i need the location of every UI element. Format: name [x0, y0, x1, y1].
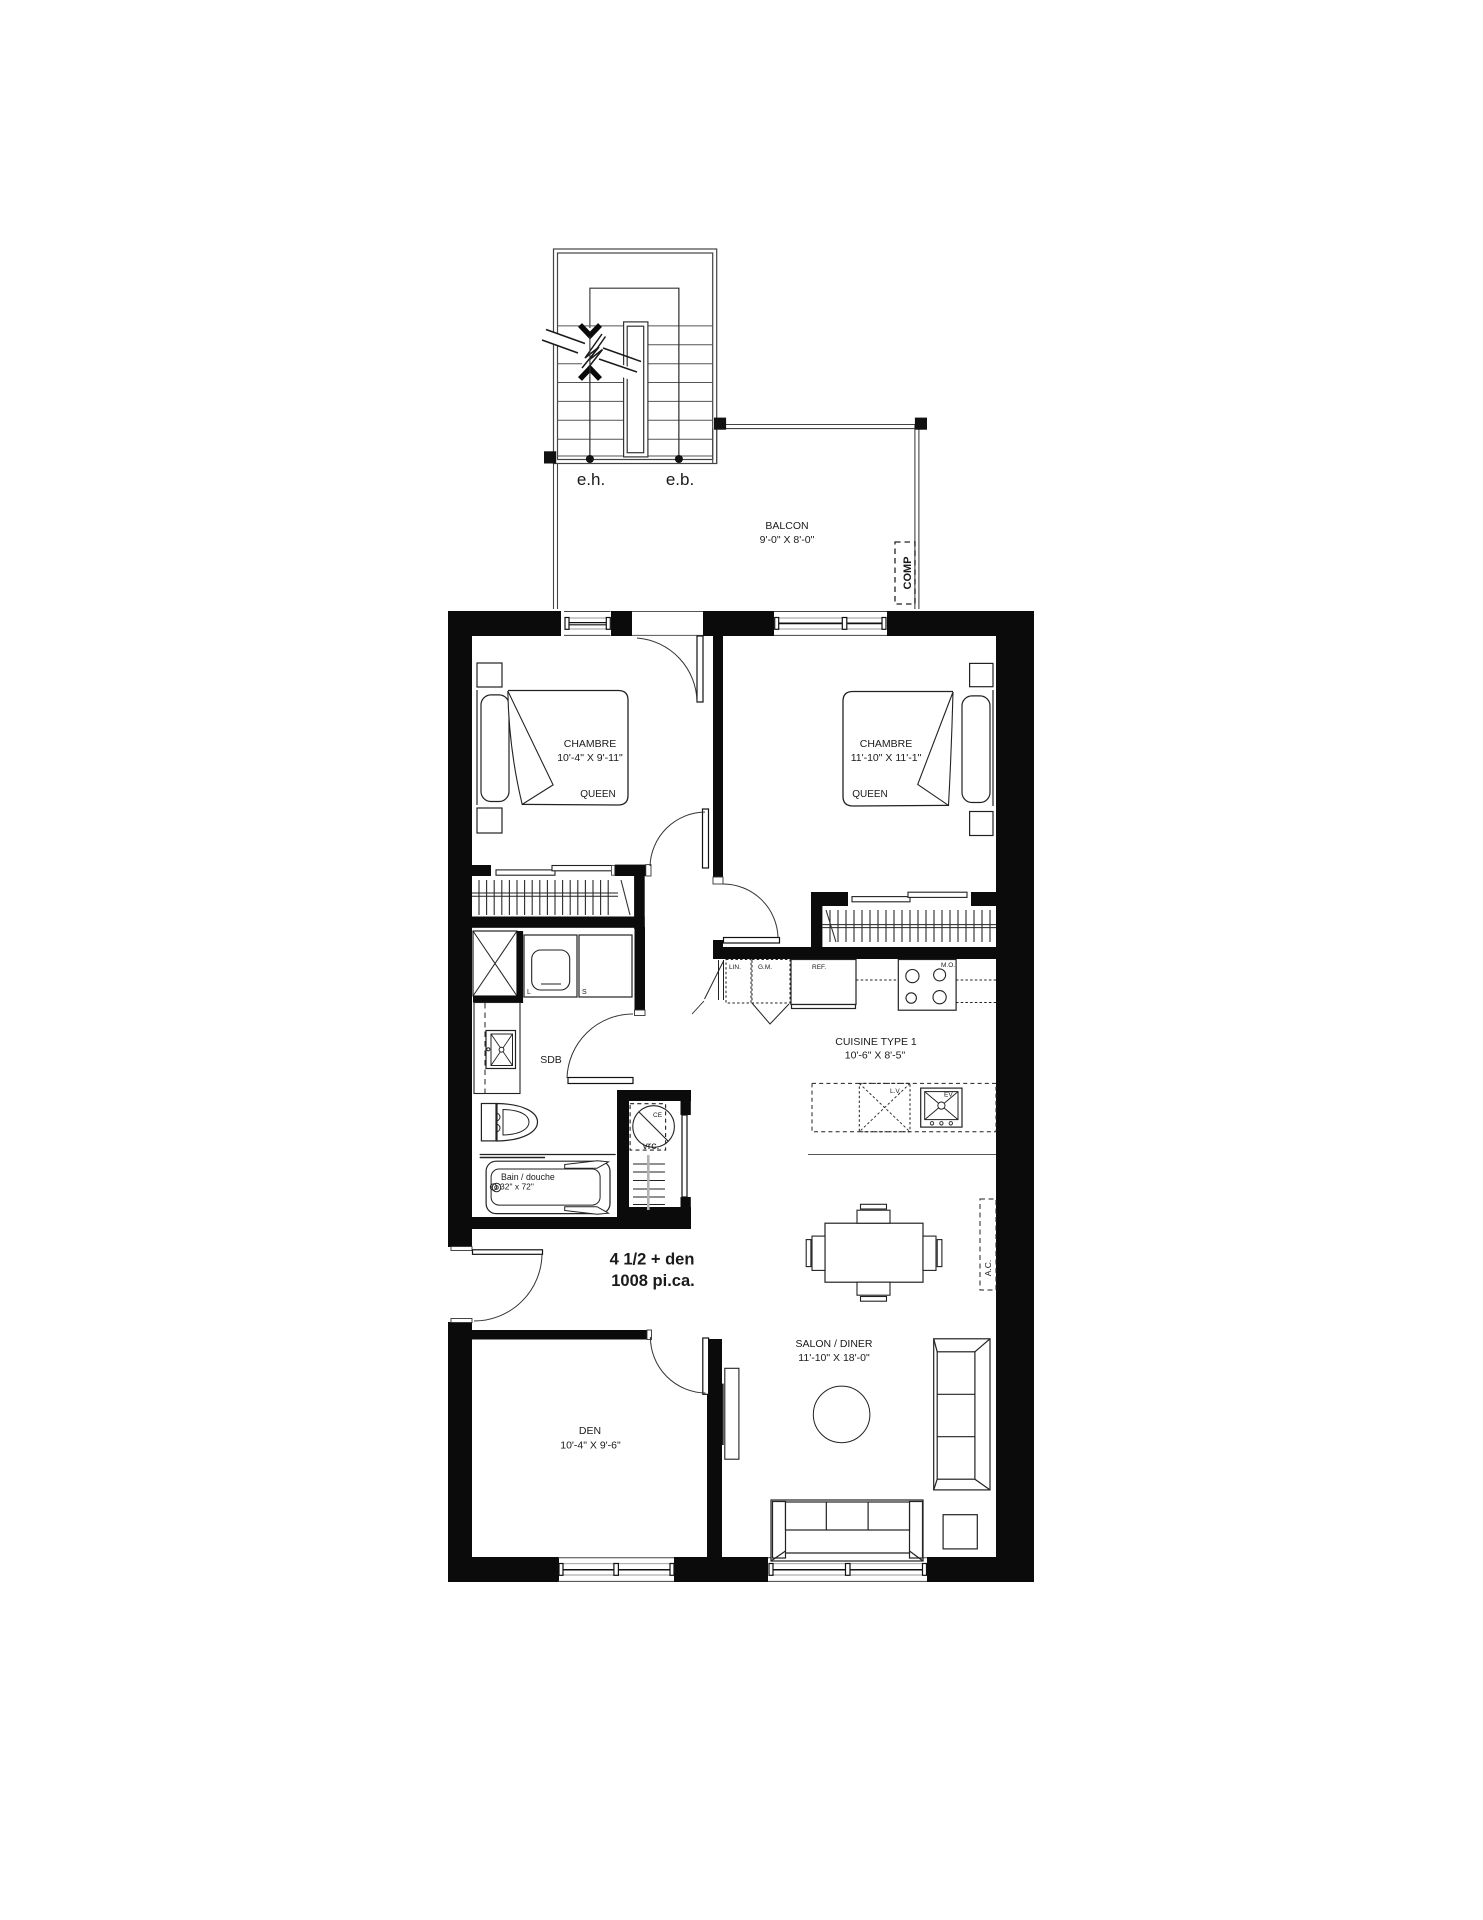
svg-text:Bain / douche: Bain / douche — [501, 1172, 555, 1182]
svg-text:CE: CE — [653, 1112, 663, 1119]
svg-text:9'-0" X 8'-0": 9'-0" X 8'-0" — [760, 534, 815, 546]
svg-text:QUEEN: QUEEN — [580, 789, 616, 800]
svg-text:S: S — [582, 989, 587, 996]
svg-text:QUEEN: QUEEN — [852, 789, 888, 800]
svg-text:G.M.: G.M. — [758, 964, 772, 971]
svg-text:11'-10" X 11'-1": 11'-10" X 11'-1" — [851, 752, 922, 764]
svg-text:DEN: DEN — [579, 1425, 601, 1437]
svg-text:10'-6" X 8'-5": 10'-6" X 8'-5" — [845, 1050, 906, 1062]
svg-text:LIN.: LIN. — [729, 964, 741, 971]
svg-text:10'-4" X 9'-6": 10'-4" X 9'-6" — [560, 1440, 621, 1452]
svg-text:SALON / DINER: SALON / DINER — [795, 1338, 872, 1350]
svg-text:CUISINE TYPE 1: CUISINE TYPE 1 — [835, 1036, 917, 1048]
svg-text:REF.: REF. — [812, 964, 826, 971]
svg-text:M.O.: M.O. — [941, 962, 955, 969]
svg-text:COMP: COMP — [902, 557, 914, 590]
svg-text:CHAMBRE: CHAMBRE — [860, 738, 913, 750]
svg-text:e.h.: e.h. — [577, 470, 605, 489]
svg-text:e.b.: e.b. — [666, 470, 694, 489]
svg-text:32" x 72": 32" x 72" — [500, 1182, 534, 1192]
svg-text:BALCON: BALCON — [765, 520, 808, 532]
svg-text:vrc.: vrc. — [643, 1140, 660, 1152]
svg-text:4 1/2 + den: 4 1/2 + den — [610, 1251, 695, 1269]
svg-text:11'-10" X 18'-0": 11'-10" X 18'-0" — [798, 1352, 870, 1364]
svg-text:CHAMBRE: CHAMBRE — [564, 738, 617, 750]
svg-text:A.C.: A.C. — [983, 1260, 993, 1277]
svg-text:L.V.: L.V. — [890, 1088, 901, 1095]
svg-text:EV: EV — [944, 1092, 953, 1099]
svg-text:SDB: SDB — [540, 1054, 562, 1066]
svg-text:1008 pi.ca.: 1008 pi.ca. — [611, 1272, 694, 1290]
svg-text:10'-4" X 9'-11": 10'-4" X 9'-11" — [557, 752, 623, 764]
svg-text:L: L — [527, 989, 531, 996]
